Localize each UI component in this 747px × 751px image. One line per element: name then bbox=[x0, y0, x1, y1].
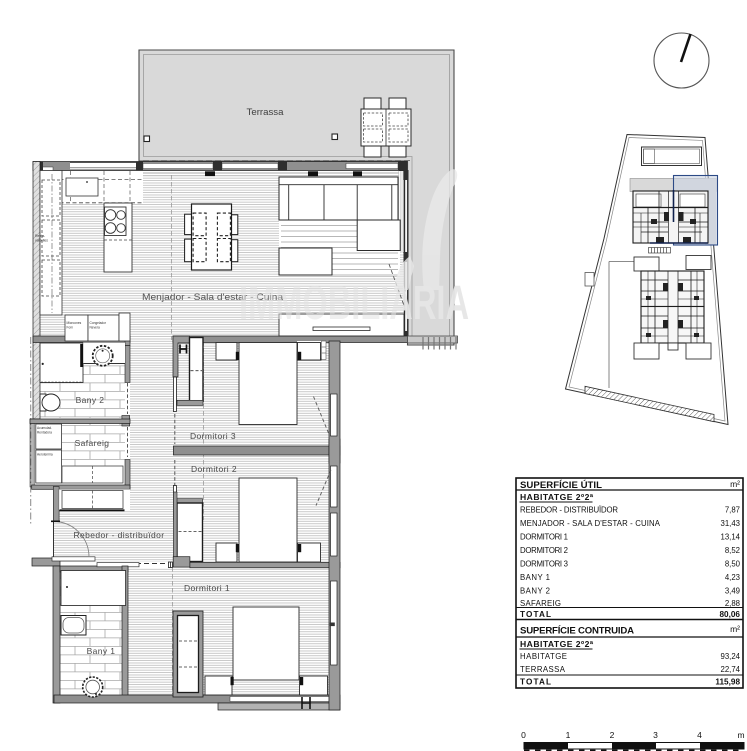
svg-text:3: 3 bbox=[653, 730, 658, 740]
svg-text:BANY 2: BANY 2 bbox=[520, 587, 550, 596]
svg-text:m²: m² bbox=[730, 479, 740, 489]
svg-text:4,23: 4,23 bbox=[725, 573, 740, 582]
svg-text:BANY 1: BANY 1 bbox=[520, 573, 550, 582]
svg-text:HABITATGE: HABITATGE bbox=[520, 652, 567, 661]
svg-text:TERRASSA: TERRASSA bbox=[520, 665, 566, 674]
svg-text:m²: m² bbox=[730, 624, 740, 634]
svg-text:Aerotermia: Aerotermia bbox=[37, 453, 53, 457]
svg-text:80,06: 80,06 bbox=[720, 610, 741, 619]
svg-text:8,50: 8,50 bbox=[725, 560, 741, 569]
svg-text:vaixelles: vaixelles bbox=[35, 239, 48, 243]
svg-text:Dormitori 3: Dormitori 3 bbox=[190, 431, 236, 441]
svg-text:Rebedor - distribuïdor: Rebedor - distribuïdor bbox=[73, 530, 164, 540]
svg-text:DORMITORI 3: DORMITORI 3 bbox=[520, 560, 568, 569]
svg-text:HABITATGE 2º2ª: HABITATGE 2º2ª bbox=[520, 639, 594, 649]
svg-text:Dormitori 1: Dormitori 1 bbox=[184, 583, 230, 593]
svg-text:Dormitori 2: Dormitori 2 bbox=[191, 464, 237, 474]
svg-text:0: 0 bbox=[521, 730, 526, 740]
svg-text:Renta-: Renta- bbox=[35, 234, 45, 238]
svg-text:93,24: 93,24 bbox=[720, 652, 740, 661]
svg-text:Microones: Microones bbox=[67, 321, 82, 325]
svg-text:Acumulad.: Acumulad. bbox=[37, 426, 52, 430]
svg-text:MENJADOR - SALA D'ESTAR - CUIN: MENJADOR - SALA D'ESTAR - CUINA bbox=[520, 519, 661, 528]
svg-text:1: 1 bbox=[566, 730, 571, 740]
svg-text:HABITATGE 2º2ª: HABITATGE 2º2ª bbox=[520, 492, 594, 502]
svg-text:DORMITORI 2: DORMITORI 2 bbox=[520, 546, 568, 555]
svg-text:Nevera: Nevera bbox=[90, 326, 101, 330]
svg-text:8,52: 8,52 bbox=[725, 546, 740, 555]
svg-text:DORMITORI 1: DORMITORI 1 bbox=[520, 533, 568, 542]
svg-text:Safareig: Safareig bbox=[75, 438, 110, 448]
svg-text:TOTAL: TOTAL bbox=[520, 678, 551, 687]
svg-text:SAFAREIG: SAFAREIG bbox=[520, 599, 561, 608]
svg-text:Forn: Forn bbox=[67, 326, 74, 330]
svg-text:SUPERFÍCIE ÚTIL: SUPERFÍCIE ÚTIL bbox=[520, 479, 602, 491]
svg-text:13,14: 13,14 bbox=[720, 533, 740, 542]
svg-text:Bany 1: Bany 1 bbox=[87, 646, 116, 656]
svg-text:2,88: 2,88 bbox=[725, 599, 740, 608]
svg-text:22,74: 22,74 bbox=[720, 665, 740, 674]
svg-text:3,49: 3,49 bbox=[725, 587, 740, 596]
svg-text:SUPERFÍCIE CONTRUIDA: SUPERFÍCIE CONTRUIDA bbox=[520, 625, 634, 637]
svg-text:7,87: 7,87 bbox=[725, 506, 740, 515]
svg-text:Bany 2: Bany 2 bbox=[76, 395, 105, 405]
svg-text:4: 4 bbox=[697, 730, 702, 740]
svg-text:115,98: 115,98 bbox=[715, 678, 740, 687]
svg-text:Terrassa: Terrassa bbox=[247, 107, 285, 118]
svg-text:m: m bbox=[737, 730, 744, 740]
svg-text:REBEDOR - DISTRIBUÏDOR: REBEDOR - DISTRIBUÏDOR bbox=[520, 506, 618, 515]
svg-text:2: 2 bbox=[610, 730, 615, 740]
svg-text:31,43: 31,43 bbox=[720, 519, 740, 528]
svg-text:Rentadora: Rentadora bbox=[37, 431, 52, 435]
svg-text:TOTAL: TOTAL bbox=[520, 610, 551, 619]
svg-text:Congelador: Congelador bbox=[90, 321, 107, 325]
